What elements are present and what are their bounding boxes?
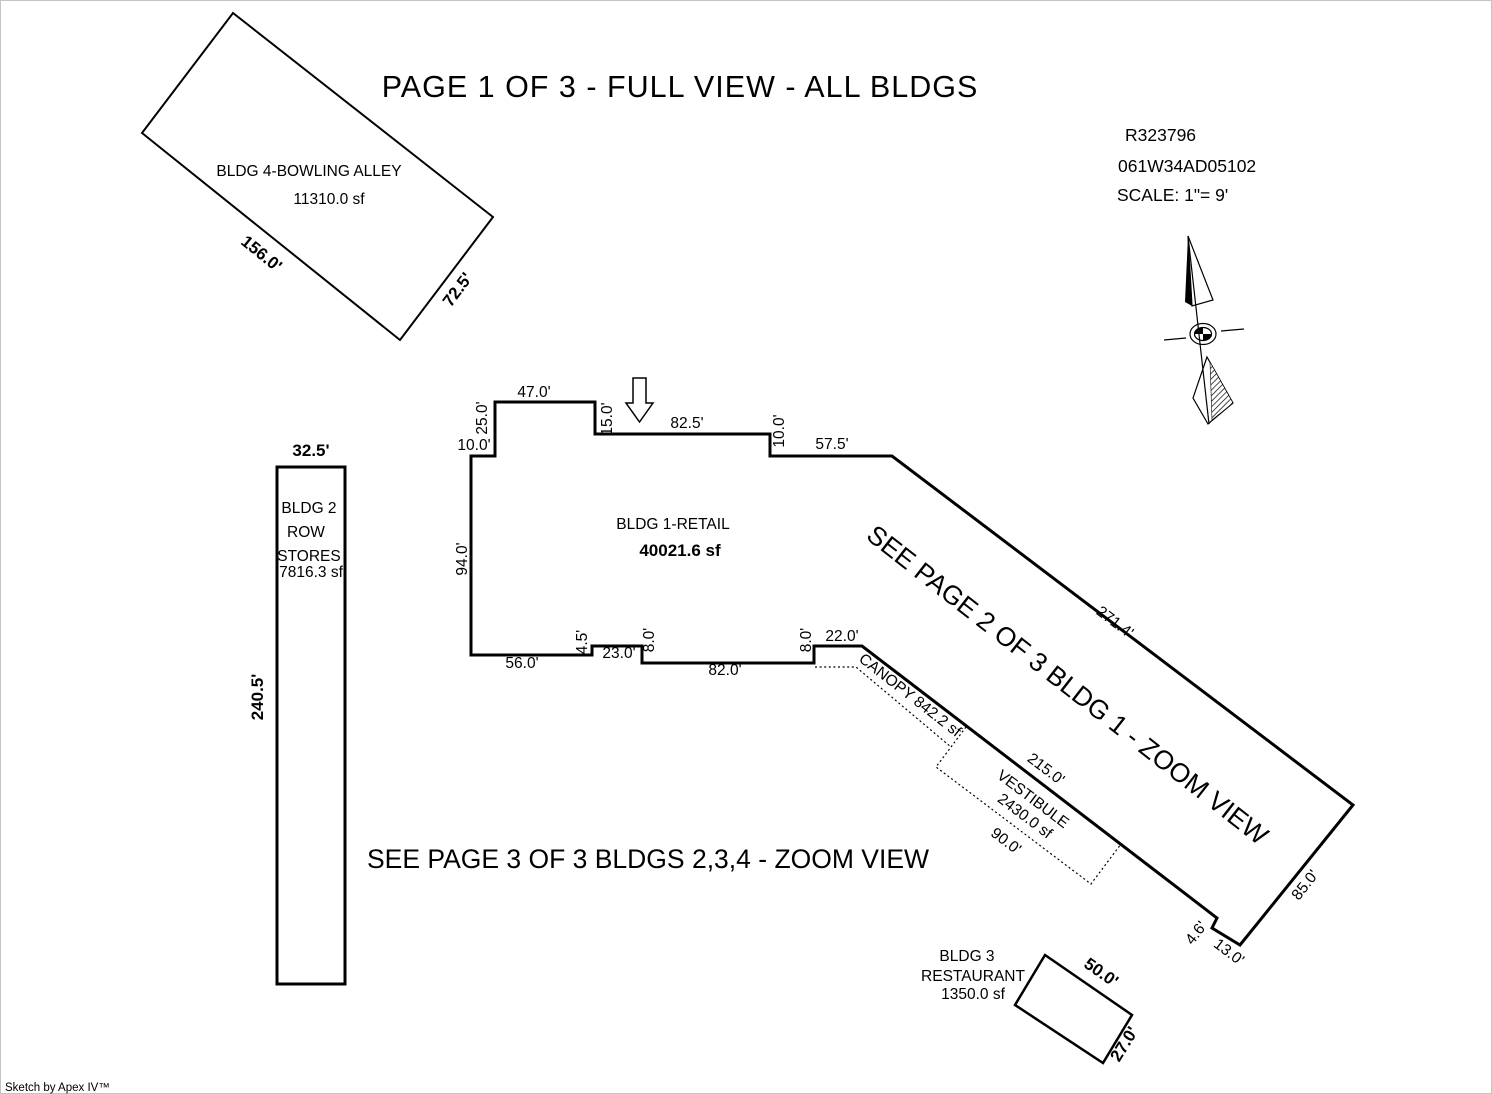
bldg2-area-label: 7816.3 sf [279, 564, 343, 581]
bldg1-dim-bottom-mid: 82.0' [708, 662, 741, 679]
scale-label: SCALE: 1"= 9' [1117, 185, 1228, 205]
sketch-page: PAGE 1 OF 3 - FULL VIEW - ALL BLDGS R323… [0, 0, 1492, 1094]
bldg1-dim-sw-diagonal: 215.0' [1024, 750, 1068, 789]
page-title: PAGE 1 OF 3 - FULL VIEW - ALL BLDGS [382, 70, 979, 104]
compass-south-blade-hatched [1210, 362, 1233, 420]
bldg1-dim-top-right: 57.5' [815, 436, 848, 453]
bldg4-name-label: BLDG 4-BOWLING ALLEY [216, 163, 401, 180]
bldg4-dim-width: 72.5' [439, 269, 477, 310]
bldg1-dim-top-notch-left: 25.0' [474, 401, 491, 434]
bldg1-dim-left: 94.0' [454, 542, 471, 575]
bldg4-area-label: 11310.0 sf [293, 191, 365, 208]
bldg1-dim-top-step-left: 10.0' [457, 437, 490, 454]
note-bldgs234-zoom: SEE PAGE 3 OF 3 BLDGS 2,3,4 - ZOOM VIEW [367, 844, 929, 874]
bldg2-outline [277, 467, 345, 984]
bldg1-dim-bottom-right: 22.0' [825, 628, 858, 645]
bldg1-dim-se-side: 85.0' [1289, 867, 1323, 904]
bldg3-dim-length: 50.0' [1080, 954, 1121, 991]
bldg1-dim-bottom-mid-left: 23.0' [602, 645, 635, 662]
bldg4-dim-length: 156.0' [237, 232, 285, 276]
bldg3-name-line1: BLDG 3 [939, 948, 994, 965]
bldg1-dim-top-mid: 82.5' [670, 415, 703, 432]
down-arrow-icon [626, 378, 653, 422]
bldg1-dim-notch-a: 4.6' [1182, 918, 1211, 948]
bldg1-dim-top-notch-right: 15.0' [599, 402, 616, 435]
bldg1-dim-bottom-step-mid: 8.0' [641, 628, 658, 653]
bldg2-dim-length: 240.5' [248, 674, 267, 721]
canopy-label: CANOPY 842.2 sf [855, 650, 964, 741]
bldg1-area-label: 40021.6 sf [639, 541, 721, 560]
sketch-canvas: PAGE 1 OF 3 - FULL VIEW - ALL BLDGS R323… [0, 0, 1492, 1094]
bldg1-dim-bottom-left: 56.0' [505, 655, 538, 672]
compass-west-tick [1164, 338, 1186, 340]
bldg2-name-line2: ROW [287, 524, 325, 541]
bldg1-dim-bottom-step-left: 4.5' [574, 630, 591, 655]
bldg1-dim-top-notch-width: 47.0' [517, 384, 550, 401]
bldg3-dim-width: 27.0' [1106, 1023, 1142, 1065]
bldg1-name-label: BLDG 1-RETAIL [616, 516, 730, 533]
compass-north-blade-filled [1185, 236, 1192, 306]
parcel-number: 061W34AD05102 [1118, 156, 1256, 176]
bldg2-dim-width: 32.5' [292, 441, 329, 460]
compass-east-tick [1221, 329, 1244, 331]
bldg3-name-line2: RESTAURANT [921, 968, 1025, 985]
bldg1-dim-top-step-right: 10.0' [771, 414, 788, 447]
north-compass-icon [1164, 236, 1244, 424]
record-number: R323796 [1125, 125, 1196, 145]
bldg2-name-line1: BLDG 2 [281, 500, 336, 517]
credit-watermark: Sketch by Apex IV™ [5, 1082, 110, 1094]
bldg1-dim-bottom-step-right: 8.0' [798, 628, 815, 653]
note-bldg1-zoom: SEE PAGE 2 OF 3 BLDG 1 - ZOOM VIEW [861, 519, 1274, 851]
bldg2-name-line3: STORES [277, 548, 340, 565]
bldg3-area-label: 1350.0 sf [941, 986, 1005, 1003]
bldg1-dim-ne-diagonal: 271.4' [1093, 603, 1137, 642]
